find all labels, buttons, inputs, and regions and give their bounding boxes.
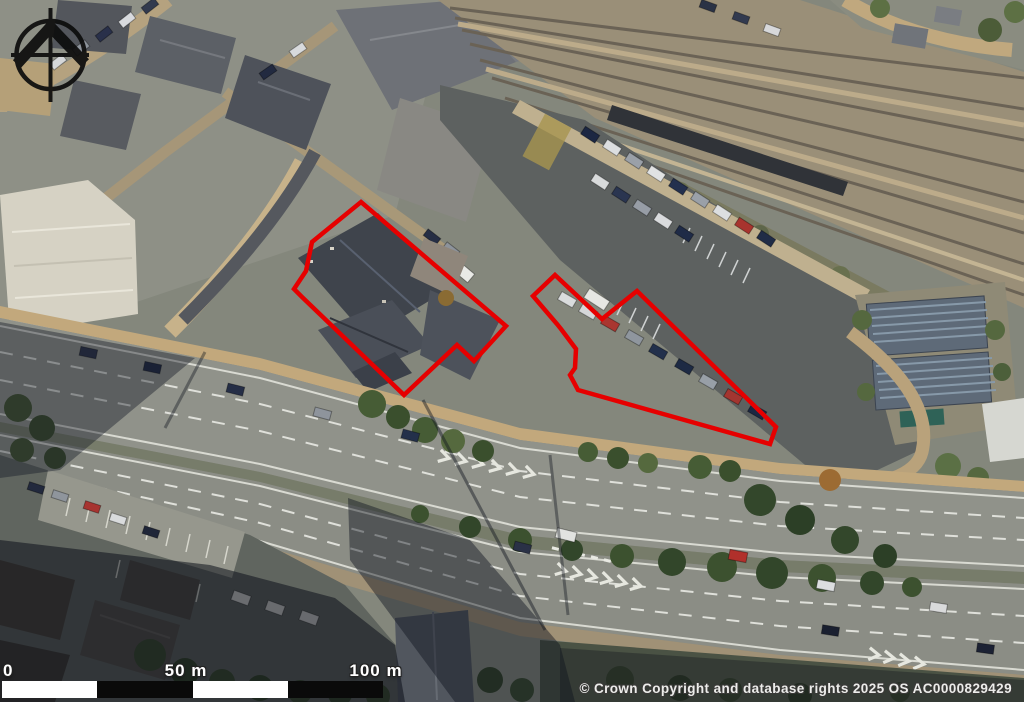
scale-label-0: 0 <box>3 661 13 681</box>
site-boundary-overlay <box>0 0 1024 702</box>
scale-bar-segment <box>2 681 97 698</box>
scale-bar-segment <box>193 681 288 698</box>
west-site-boundary <box>294 202 506 395</box>
scale-bar-segment <box>288 681 383 698</box>
east-site-boundary <box>533 275 776 444</box>
scale-bar-segment <box>97 681 192 698</box>
scale-bar <box>2 681 383 698</box>
scale-label-100: 100 m <box>338 661 414 681</box>
scale-label-50: 50 m <box>150 661 222 681</box>
north-arrow-icon <box>0 0 100 110</box>
copyright-attribution: © Crown Copyright and database rights 20… <box>579 681 1012 696</box>
map-viewport: 0 50 m 100 m © Crown Copyright and datab… <box>0 0 1024 702</box>
